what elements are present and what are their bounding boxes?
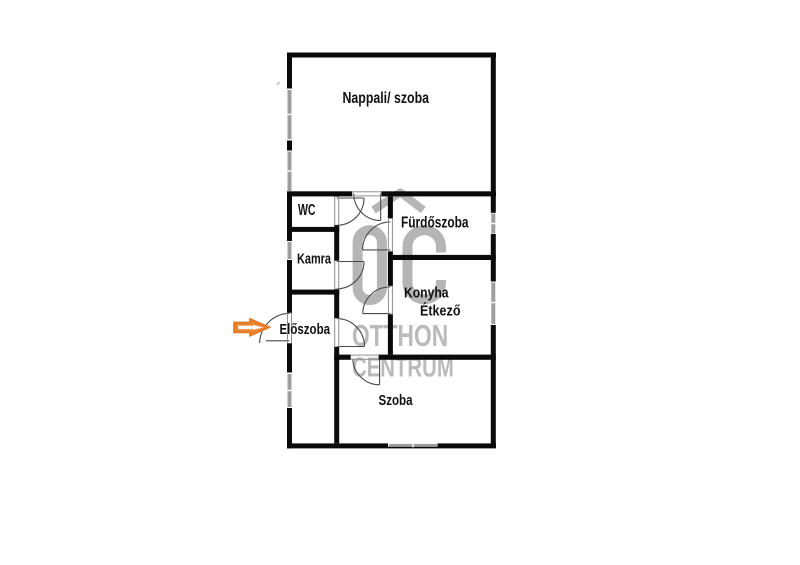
svg-text:Szoba: Szoba [379,393,414,409]
svg-text:Konyha: Konyha [404,286,449,302]
svg-text:Nappali/ szoba: Nappali/ szoba [343,90,430,107]
svg-text:Fürdőszoba: Fürdőszoba [401,215,469,232]
svg-text:Kamra: Kamra [297,251,332,267]
svg-text:Előszoba: Előszoba [280,322,331,338]
svg-text:WC: WC [298,202,316,219]
svg-text:OTTHON: OTTHON [352,319,448,353]
svg-text:Étkező: Étkező [420,303,461,320]
